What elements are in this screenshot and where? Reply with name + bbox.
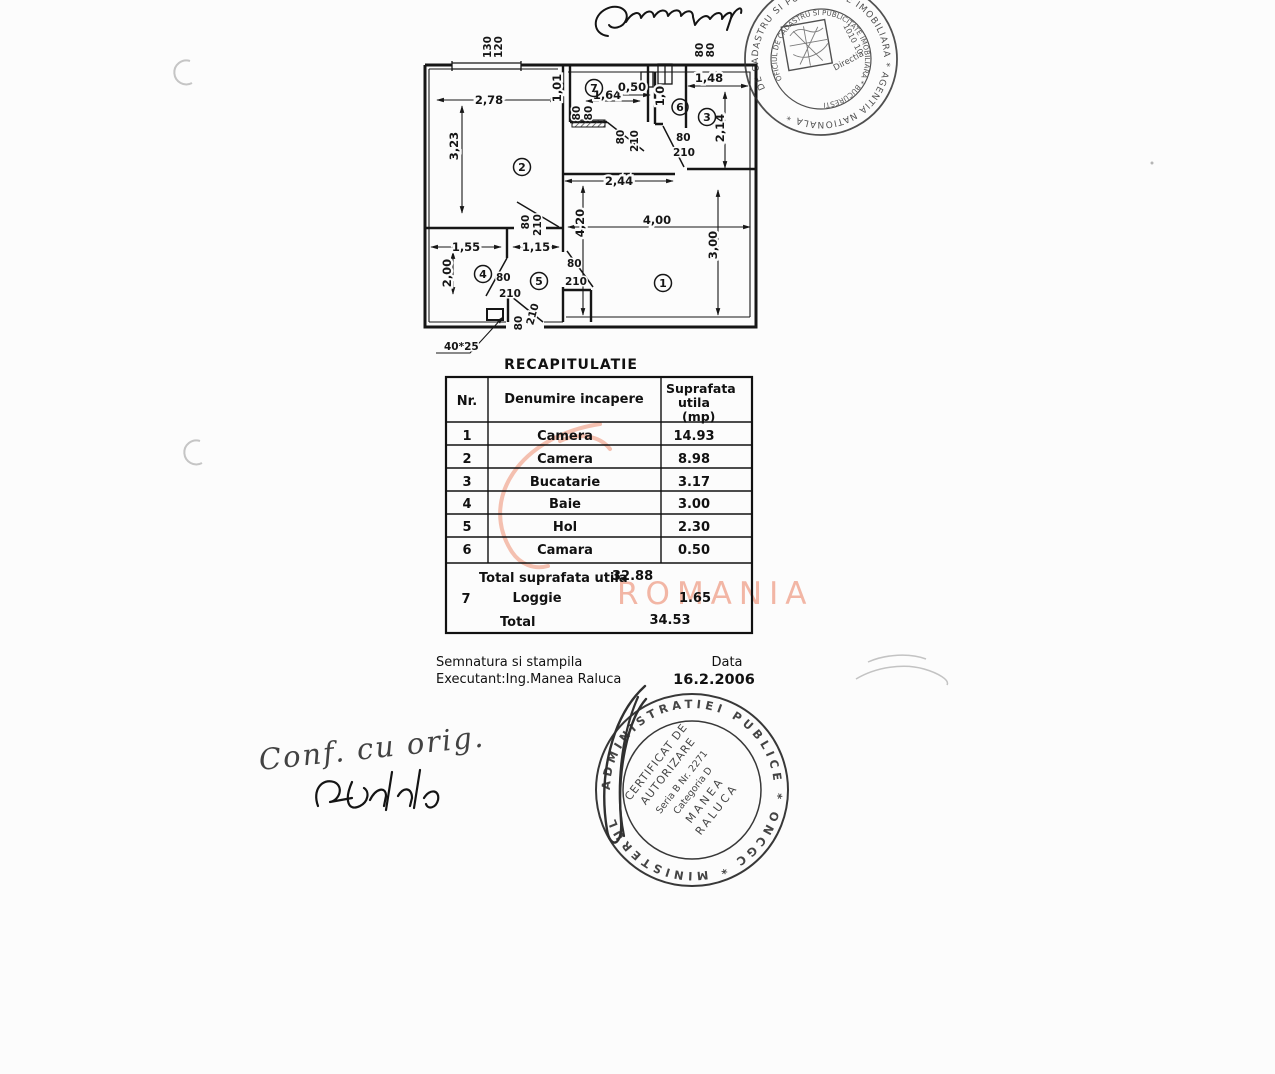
cell-area: 0.50	[678, 543, 710, 558]
dim-label: 2,00	[440, 259, 454, 287]
cell-nr: 6	[462, 543, 471, 558]
door-label: 210	[629, 130, 641, 152]
dim-label: 1,48	[695, 71, 723, 85]
speck	[1151, 162, 1154, 165]
door-label: 80	[567, 258, 582, 270]
room-number: 2	[518, 161, 526, 174]
signature-block: Semnatura si stampila Executant:Ing.Mane…	[436, 655, 755, 688]
handwritten-signature-bottom	[316, 770, 438, 810]
door-label: 80	[615, 130, 627, 145]
col-header-nr: Nr.	[457, 394, 477, 409]
cell-nr: 5	[462, 520, 471, 535]
cell-name: Baie	[549, 497, 581, 512]
dim-label: 4,20	[573, 209, 587, 237]
door-label: 80	[496, 272, 511, 284]
dim-label: 1,55	[452, 240, 480, 254]
room-number: 5	[535, 275, 543, 288]
room-number: 3	[703, 111, 711, 124]
door-label: 210	[532, 214, 544, 236]
room-numbers: 1 2 3 4 5 6 7	[475, 80, 716, 292]
authorization-stamp: ADMINISTRATIEI PUBLICE * ONCGC * MINISTE…	[596, 686, 788, 886]
handwritten-signature-top	[596, 7, 742, 36]
document-scan: ROMANIA 40*25	[0, 0, 1275, 1074]
cell-name: Loggie	[512, 591, 561, 606]
door-label: 210	[565, 276, 587, 288]
cadastre-stamp: DE CADASTRU SI PUBLICITATE IMOBILIARA * …	[718, 0, 924, 162]
window-size-label: 80	[705, 43, 717, 58]
window-size-label: 120	[493, 36, 505, 58]
dim-label: 2,78	[475, 93, 503, 107]
cell-nr: 4	[462, 497, 471, 512]
dim-label: 1,15	[522, 240, 550, 254]
cell-name: Bucatarie	[530, 475, 600, 490]
cell-nr: 2	[462, 452, 471, 467]
pencil-squiggle	[868, 655, 926, 662]
signature-scrawl	[626, 10, 731, 30]
door-label: 80	[583, 106, 595, 121]
floor-plan: 40*25 2,78 3,23 1,55 2,00 1,15 2,44 4,20…	[425, 36, 756, 353]
signature-stroke	[348, 770, 438, 810]
pencil-squiggle	[856, 666, 947, 685]
cell-name: Camera	[537, 452, 593, 467]
col-header-area-3: (mp)	[682, 409, 715, 424]
dim-label: 1,01	[550, 74, 564, 102]
door-label: 210	[673, 147, 695, 159]
door-label: 80	[520, 215, 532, 230]
recap-table: RECAPITULATIE Nr. Denumire incapere Supr…	[446, 357, 752, 633]
dim-label: 2,44	[605, 174, 633, 188]
cell-area: 1.65	[679, 591, 711, 606]
date-label: Data	[711, 655, 742, 670]
signature-flourish	[731, 8, 741, 18]
door-label: 210	[524, 302, 541, 326]
cell-name: Camera	[537, 429, 593, 444]
room-number: 6	[676, 101, 684, 114]
col-header-area-2: utila	[678, 395, 710, 410]
dim-label: 0,50	[618, 80, 646, 94]
subtotal-value: 32.88	[612, 569, 653, 584]
col-header-area-1: Suprafata	[666, 381, 736, 396]
cell-nr: 7	[461, 592, 470, 607]
cell-area: 2.30	[678, 520, 710, 535]
door-label: 80	[513, 316, 525, 331]
table-rows: 1 Camera 14.93 2 Camera 8.98 3 Bucatarie…	[462, 429, 714, 558]
executant-line: Executant:Ing.Manea Raluca	[436, 672, 621, 687]
stamp-center-text: CERTIFICAT DE AUTORIZARE Seria B Nr. 227…	[622, 721, 751, 850]
signature-loop	[596, 7, 627, 36]
cell-nr: 3	[462, 475, 471, 490]
total-value: 34.53	[649, 613, 690, 628]
punch-hole-mark	[174, 60, 192, 84]
room-number: 1	[659, 277, 667, 290]
stamp-outer-ring	[718, 0, 924, 162]
dim-label: 4,00	[643, 213, 671, 227]
door-label: 80	[571, 106, 583, 121]
cell-area: 8.98	[678, 452, 710, 467]
cell-area: 3.00	[678, 497, 710, 512]
dim-label: 3,23	[447, 132, 461, 160]
punch-hole-mark	[184, 440, 202, 464]
date-value: 16.2.2006	[673, 672, 755, 688]
scanned-document-page: ROMANIA 40*25	[0, 0, 1275, 1074]
cell-name: Camara	[537, 543, 593, 558]
conform-note: Conf. cu orig.	[257, 719, 486, 810]
column-label: 40*25	[444, 341, 479, 353]
conform-note-text: Conf. cu orig.	[257, 719, 486, 777]
cell-nr: 1	[462, 429, 471, 444]
emblem-detail	[787, 23, 831, 69]
cell-area: 3.17	[678, 475, 710, 490]
signature-stroke	[316, 781, 352, 806]
column-40x25	[487, 309, 503, 320]
signature-caption: Semnatura si stampila	[436, 655, 582, 670]
door-label: 210	[499, 288, 521, 300]
cell-area: 14.93	[673, 429, 714, 444]
dim-label: 3,00	[706, 231, 720, 259]
subtotal-label: Total suprafata utila	[479, 571, 628, 586]
dim-label: 1,0	[653, 86, 667, 106]
cell-name: Hol	[553, 520, 577, 535]
room-number: 7	[590, 82, 598, 95]
total-label: Total	[500, 615, 536, 630]
room-number: 4	[479, 268, 487, 281]
door-label: 80	[676, 132, 691, 144]
table-title: RECAPITULATIE	[504, 357, 638, 373]
col-header-name: Denumire incapere	[504, 392, 644, 407]
